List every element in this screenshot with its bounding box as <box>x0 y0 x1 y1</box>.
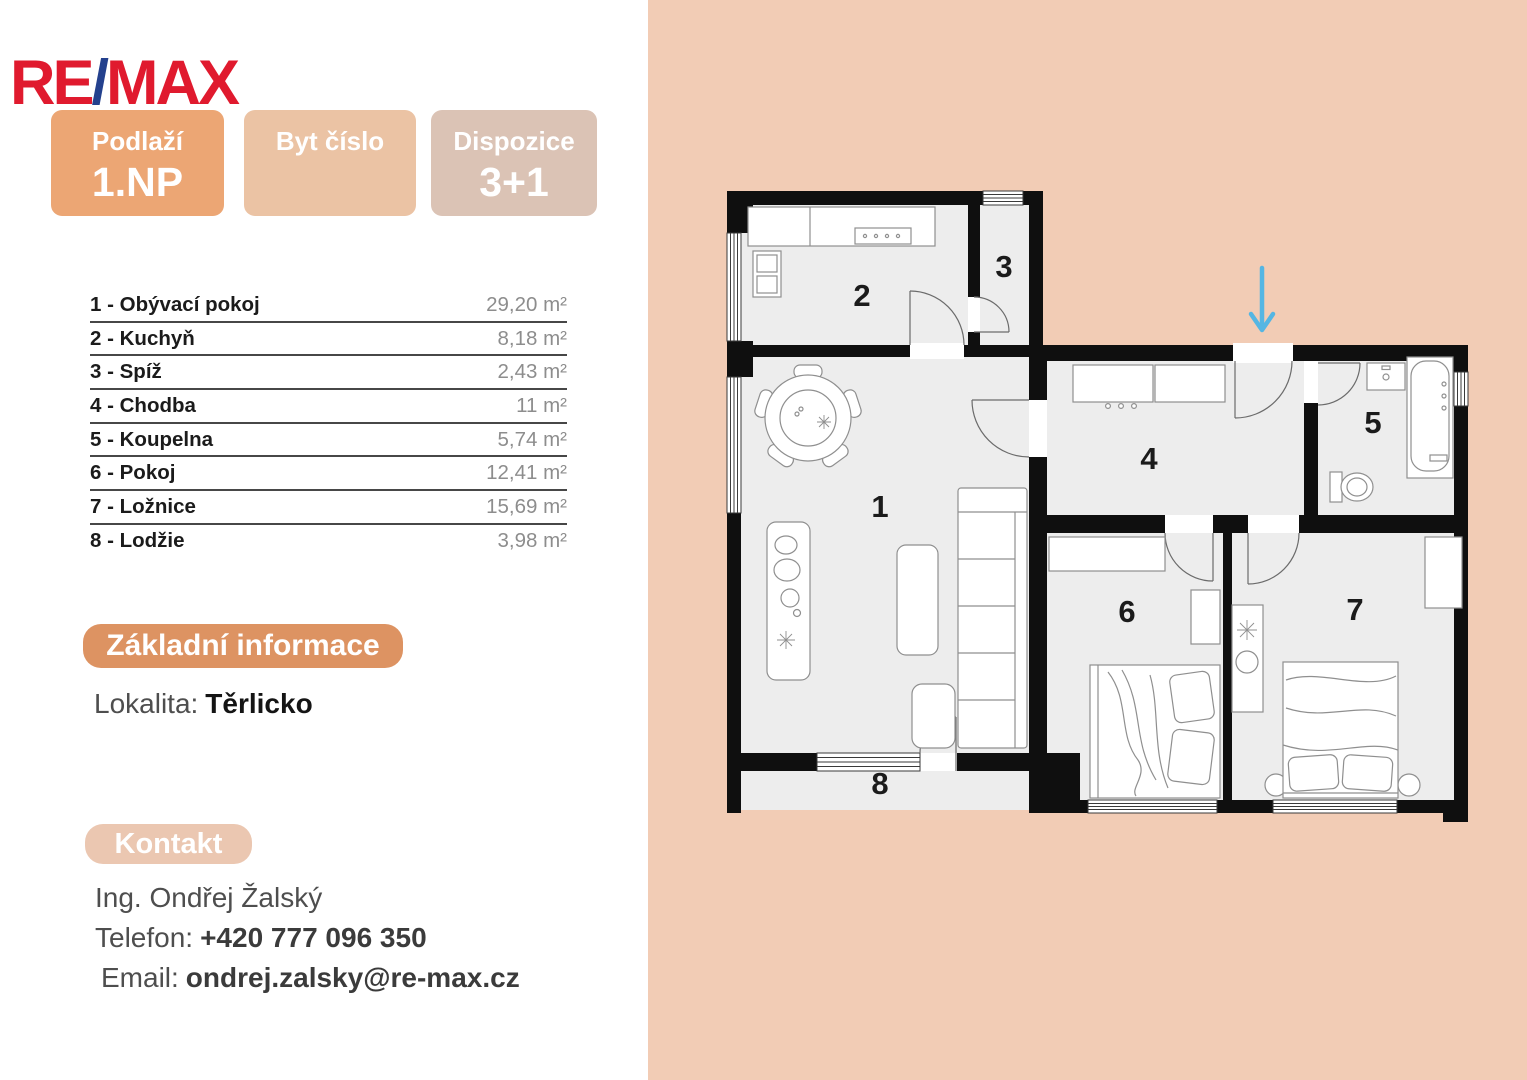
floor-plan: 1 2 3 4 5 6 7 8 <box>720 160 1470 822</box>
contact-block: Ing. Ondřej Žalský Telefon:+420 777 096 … <box>95 878 520 998</box>
table-row: 8 - Lodžie3,98 m² <box>90 525 567 557</box>
lokalita-line: Lokalita:Těrlicko <box>94 688 313 720</box>
room-area: 15,69 m² <box>486 495 567 519</box>
room-name: 3 - Spíž <box>90 360 162 384</box>
room-area: 8,18 m² <box>498 327 568 351</box>
sofa <box>958 488 1027 748</box>
room-label-5: 5 <box>1364 405 1381 440</box>
room-name: 7 - Ložnice <box>90 495 196 519</box>
living-shelf-plant <box>767 522 810 680</box>
badge-podlazi-value: 1.NP <box>51 159 224 206</box>
room-area: 2,43 m² <box>498 360 568 384</box>
entrance-arrow-icon <box>1251 268 1273 330</box>
logo-slash: / <box>92 48 107 118</box>
badge-podlazi-label: Podlaží <box>51 126 224 157</box>
table-row: 5 - Koupelna5,74 m² <box>90 424 567 458</box>
phone-label: Telefon: <box>95 922 193 953</box>
room-area: 12,41 m² <box>486 461 567 485</box>
remax-logo: RE/MAX <box>10 52 237 115</box>
email-label: Email: <box>101 962 179 993</box>
room-area: 29,20 m² <box>486 293 567 317</box>
badge-dispozice-label: Dispozice <box>431 126 597 157</box>
room-label-7: 7 <box>1346 592 1363 627</box>
table-row: 3 - Spíž2,43 m² <box>90 356 567 390</box>
phone-value: +420 777 096 350 <box>200 922 427 953</box>
table-row: 4 - Chodba11 m² <box>90 390 567 424</box>
table-row: 6 - Pokoj12,41 m² <box>90 457 567 491</box>
agent-name: Ing. Ondřej Žalský <box>95 878 520 918</box>
room-label-3: 3 <box>995 249 1012 284</box>
room-label-8: 8 <box>871 766 888 801</box>
phone-line: Telefon:+420 777 096 350 <box>95 918 520 958</box>
lokalita-label: Lokalita: <box>94 688 198 719</box>
room-area: 5,74 m² <box>498 428 568 452</box>
lokalita-value: Těrlicko <box>205 688 312 719</box>
logo-re: RE <box>10 48 92 118</box>
room-name: 6 - Pokoj <box>90 461 175 485</box>
badge-byt-cislo-label: Byt číslo <box>244 126 416 157</box>
room-name: 4 - Chodba <box>90 394 196 418</box>
table-row: 1 - Obývací pokoj29,20 m² <box>90 289 567 323</box>
coffee-table <box>897 545 938 655</box>
room-name: 5 - Koupelna <box>90 428 213 452</box>
room-area: 3,98 m² <box>498 529 568 553</box>
room-name: 8 - Lodžie <box>90 529 185 553</box>
badge-dispozice: Dispozice 3+1 <box>431 110 597 216</box>
email-value: ondrej.zalsky@re-max.cz <box>186 962 520 993</box>
room-name: 1 - Obývací pokoj <box>90 293 260 317</box>
flyer-page: { "brand": {"re": "RE", "slash": "/", "m… <box>0 0 1527 1080</box>
badge-podlazi: Podlaží 1.NP <box>51 110 224 216</box>
room-table: 1 - Obývací pokoj29,20 m² 2 - Kuchyň8,18… <box>90 289 567 557</box>
hall-wardrobes <box>1073 365 1225 408</box>
badge-byt-cislo: Byt číslo <box>244 110 416 216</box>
armchair <box>912 684 955 748</box>
section-title-zakladni-informace: Základní informace <box>83 624 403 668</box>
room-label-1: 1 <box>871 489 888 524</box>
table-row: 2 - Kuchyň8,18 m² <box>90 323 567 357</box>
logo-max: MAX <box>106 48 237 118</box>
room-label-6: 6 <box>1118 594 1135 629</box>
email-line: Email:ondrej.zalsky@re-max.cz <box>95 958 520 998</box>
section-title-kontakt: Kontakt <box>85 824 252 864</box>
room-label-2: 2 <box>853 278 870 313</box>
badge-dispozice-value: 3+1 <box>431 159 597 206</box>
room-name: 2 - Kuchyň <box>90 327 195 351</box>
room-area: 11 m² <box>516 394 567 418</box>
table-row: 7 - Ložnice15,69 m² <box>90 491 567 525</box>
room-label-4: 4 <box>1140 441 1158 476</box>
